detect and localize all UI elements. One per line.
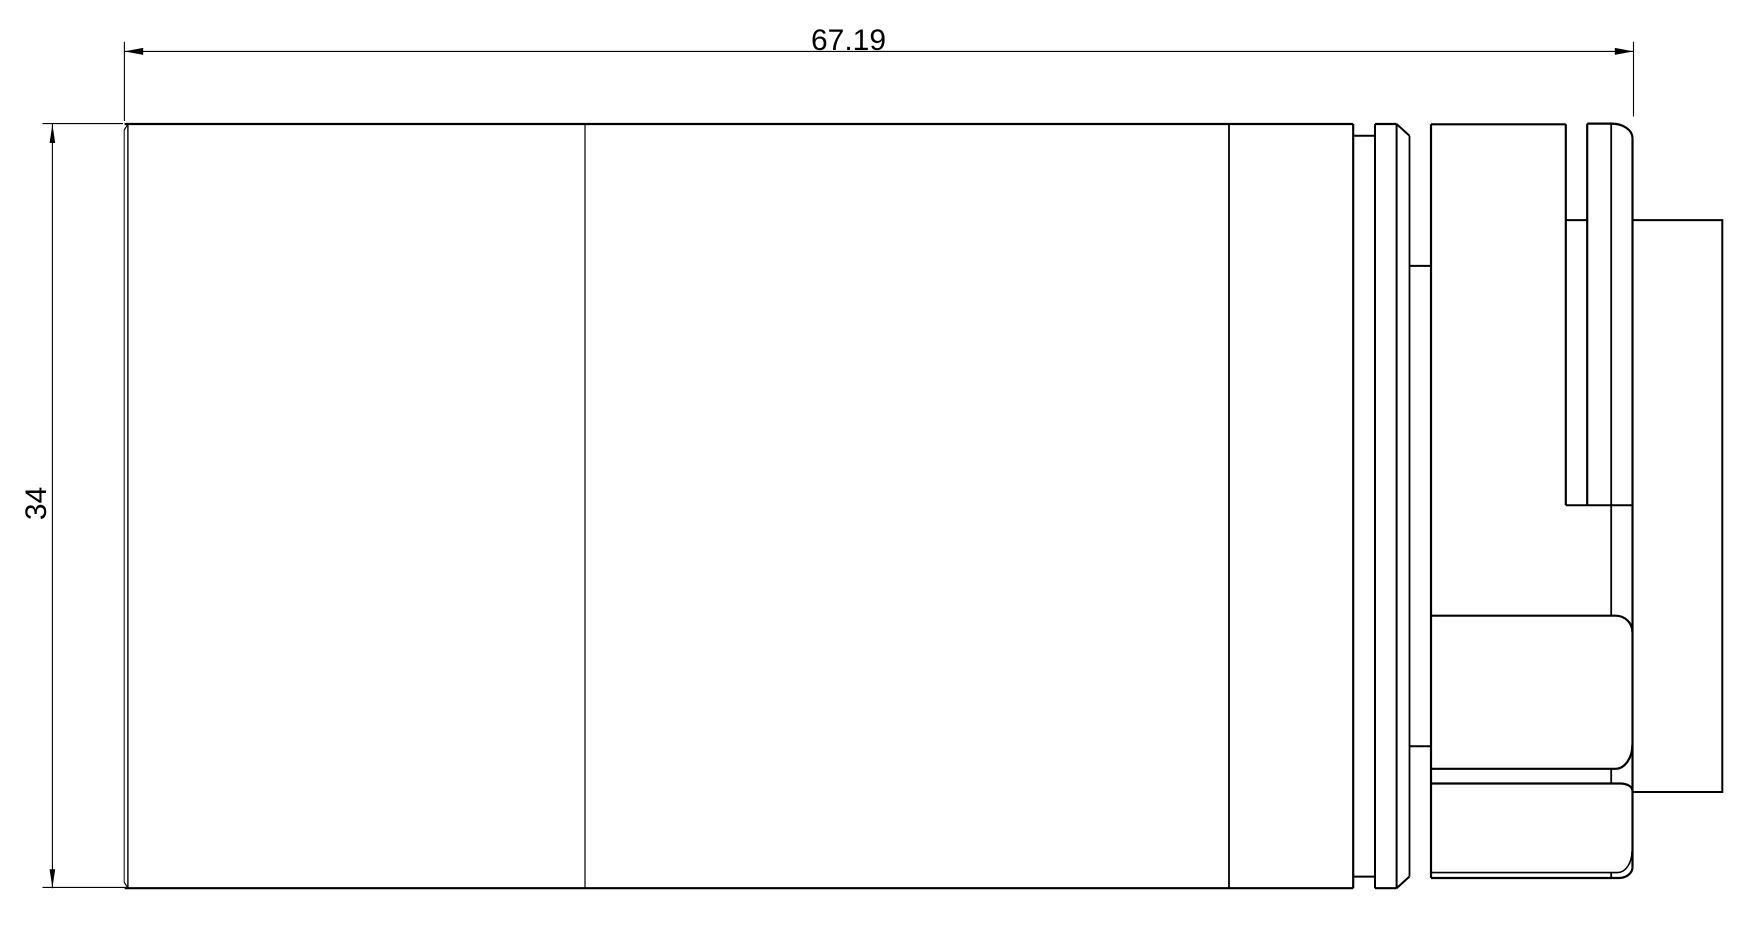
svg-text:34: 34 — [20, 487, 53, 520]
svg-text:67.19: 67.19 — [811, 24, 886, 57]
